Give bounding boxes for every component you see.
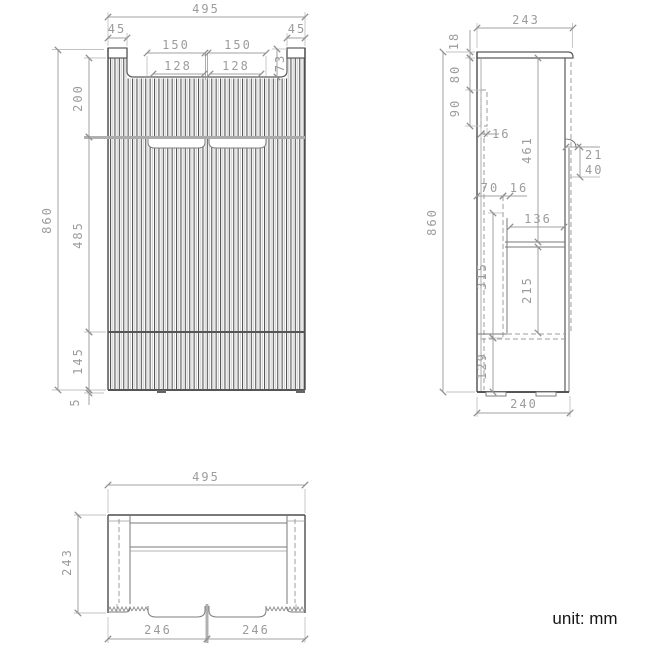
side-dim-base-depth: 240: [477, 396, 570, 417]
side-foot-front: [536, 392, 556, 396]
side-dim-drawer-zone-label: 315: [475, 262, 489, 290]
top-dim-door-right: 246: [207, 617, 305, 643]
top-dim-door-left-label: 246: [144, 623, 172, 637]
side-dim-handle-zone-label: 40: [585, 163, 603, 177]
side-top-panel: [477, 52, 573, 58]
top-view: 495 243 246 246: [60, 470, 305, 643]
side-dim-overall-height-label: 860: [425, 208, 439, 236]
top-cabinet-body: [108, 515, 305, 643]
front-foot-left: [157, 390, 166, 393]
top-dim-door-right-label: 246: [242, 623, 270, 637]
front-dim-post-right-label: 45: [288, 22, 306, 36]
front-handle-recess-right: [209, 139, 266, 148]
front-dim-bottom-section-label: 145: [71, 347, 85, 375]
front-top-recess-edge: [127, 48, 287, 77]
front-view: 495 45 45 150 150 128 128: [40, 2, 306, 407]
front-dim-top-section: 200: [71, 58, 106, 137]
front-dim-door-right-label: 150: [224, 38, 252, 52]
side-dim-top-thickness: 18: [447, 30, 475, 58]
side-dim-slide-gap-label: 16: [510, 181, 528, 195]
side-dim-back-offset: 70: [477, 181, 503, 196]
side-dim-base-depth-label: 240: [510, 397, 538, 411]
front-dim-top-recess-depth-label: 73: [273, 54, 287, 72]
front-handle-recess-left: [148, 139, 205, 148]
front-dim-post-left: 45: [108, 22, 127, 46]
front-dim-middle-section-label: 485: [71, 221, 85, 249]
side-dim-cleat-depth-label: 16: [492, 127, 510, 141]
side-dim-top-thickness-label: 18: [447, 32, 461, 50]
side-dim-drawer-zone: 315: [475, 213, 503, 338]
side-dim-overall-depth-label: 243: [512, 13, 540, 27]
front-dim-door-left-label: 150: [162, 38, 190, 52]
front-dim-post-right: 45: [287, 22, 306, 46]
side-dim-back-offset-label: 70: [481, 181, 499, 195]
front-dim-post-left-label: 45: [108, 22, 126, 36]
side-dim-overall-depth: 243: [477, 13, 573, 48]
side-dim-door-height-label: 461: [520, 136, 534, 164]
front-dim-overall-width: 495: [108, 2, 305, 46]
side-dim-cleat-offset-label: 80: [448, 65, 462, 83]
top-handle-recess-right: [209, 606, 266, 617]
side-dim-cleat-height: 90: [448, 90, 481, 126]
side-foot-back: [486, 392, 506, 396]
side-view: 243 18 80 90 16 461: [425, 13, 603, 417]
front-door-split-line: [206, 53, 208, 80]
side-dim-cleat-depth: 16: [481, 127, 510, 141]
front-dim-recess-right: 128: [210, 59, 261, 74]
front-dim-bottom-section: 145: [71, 332, 89, 390]
front-dim-recess-left-label: 128: [164, 59, 192, 73]
front-dim-recess-left: 128: [153, 59, 204, 74]
front-flute-center: [127, 79, 287, 391]
top-dim-overall-width: 495: [108, 470, 305, 513]
side-dim-slide-gap: 16: [503, 181, 528, 196]
unit-note: unit: mm: [552, 609, 617, 628]
front-dim-base-gap: 5: [68, 390, 104, 407]
front-right-post-cap: [287, 48, 305, 58]
front-flute-right-post: [287, 58, 305, 390]
side-dim-drawer-box: 215: [520, 247, 538, 333]
side-dim-bottom-zone-label: 129: [475, 352, 489, 380]
side-dim-cleat-offset: 80: [448, 58, 481, 90]
technical-drawing-page: 495 45 45 150 150 128 128: [0, 0, 650, 650]
side-dim-cleat-height-label: 90: [448, 99, 462, 117]
front-dim-base-gap-label: 5: [68, 397, 82, 406]
front-dim-top-recess-depth: 73: [272, 49, 287, 77]
top-dim-overall-depth: 243: [60, 515, 106, 613]
side-dim-handle-lip-label: 21: [585, 148, 603, 162]
front-dim-middle-section: 485: [71, 137, 108, 332]
side-dim-drawer-depth-label: 136: [524, 212, 552, 226]
front-flute-left-post: [108, 58, 127, 390]
side-dim-handle-lip: 21: [566, 147, 603, 162]
top-dim-overall-depth-label: 243: [60, 548, 74, 576]
top-dim-door-left: 246: [108, 617, 207, 643]
top-dim-overall-width-label: 495: [192, 470, 220, 484]
front-foot-right: [296, 390, 305, 393]
front-dim-top-section-label: 200: [71, 84, 85, 112]
front-cabinet-body: [108, 48, 305, 393]
front-dim-recess-right-label: 128: [222, 59, 250, 73]
front-dim-overall-height-label: 860: [40, 206, 54, 234]
side-dim-drawer-box-label: 215: [520, 276, 534, 304]
front-dim-overall-width-label: 495: [192, 2, 220, 16]
front-left-post-cap: [108, 48, 127, 58]
top-handle-recess-left: [148, 606, 205, 617]
side-dim-drawer-depth: 136: [510, 212, 564, 227]
side-wall-cleat-hidden: [481, 90, 487, 126]
drawing-canvas: 495 45 45 150 150 128 128: [0, 0, 650, 650]
